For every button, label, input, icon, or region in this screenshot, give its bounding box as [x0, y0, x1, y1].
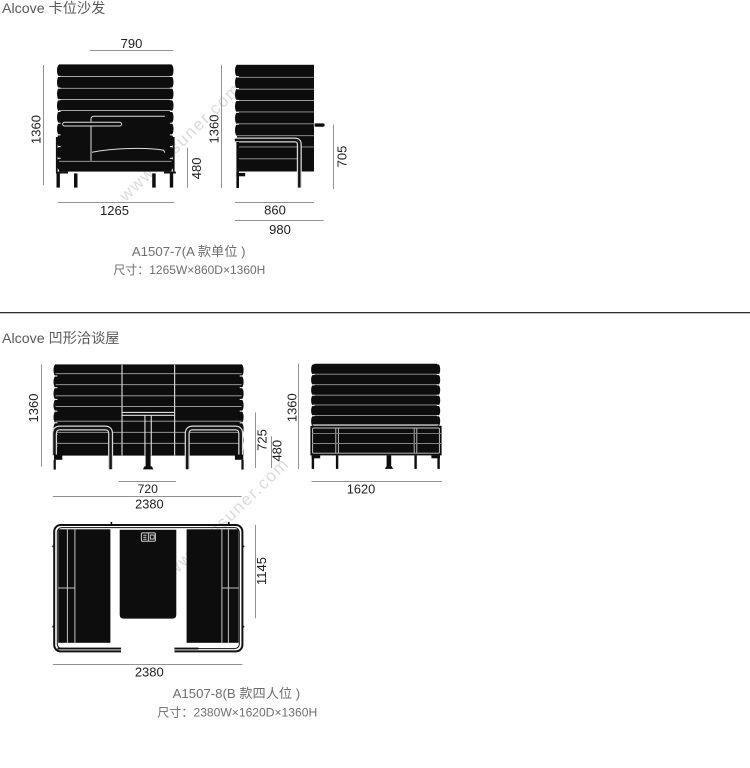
svg-text:705: 705: [335, 146, 350, 168]
svg-text:860: 860: [264, 203, 286, 218]
svg-text:480: 480: [270, 440, 285, 462]
svg-text:Alcove 卡位沙发: Alcove 卡位沙发: [2, 1, 105, 17]
svg-text:480: 480: [189, 158, 204, 180]
svg-text:A1507-7(A 款单位 ): A1507-7(A 款单位 ): [132, 244, 246, 259]
svg-text:尺寸：1265W×860D×1360H: 尺寸：1265W×860D×1360H: [113, 263, 265, 277]
svg-text:1360: 1360: [284, 393, 299, 422]
svg-text:725: 725: [254, 429, 269, 451]
svg-text:2380: 2380: [135, 497, 163, 512]
svg-text:1360: 1360: [26, 394, 41, 423]
svg-text:A1507-8(B 款四人位 ): A1507-8(B 款四人位 ): [173, 686, 301, 701]
svg-text:1360: 1360: [29, 115, 44, 144]
svg-text:1145: 1145: [254, 557, 269, 585]
svg-text:720: 720: [138, 482, 159, 496]
svg-text:980: 980: [269, 222, 291, 237]
svg-text:Alcove 凹形洽谈屋: Alcove 凹形洽谈屋: [2, 331, 119, 347]
svg-text:尺寸：2380W×1620D×1360H: 尺寸：2380W×1620D×1360H: [157, 705, 317, 719]
svg-text:1265: 1265: [100, 203, 129, 218]
svg-text:2380: 2380: [135, 664, 164, 679]
svg-text:1620: 1620: [347, 481, 375, 496]
svg-text:1360: 1360: [206, 115, 221, 144]
svg-text:790: 790: [121, 36, 143, 51]
